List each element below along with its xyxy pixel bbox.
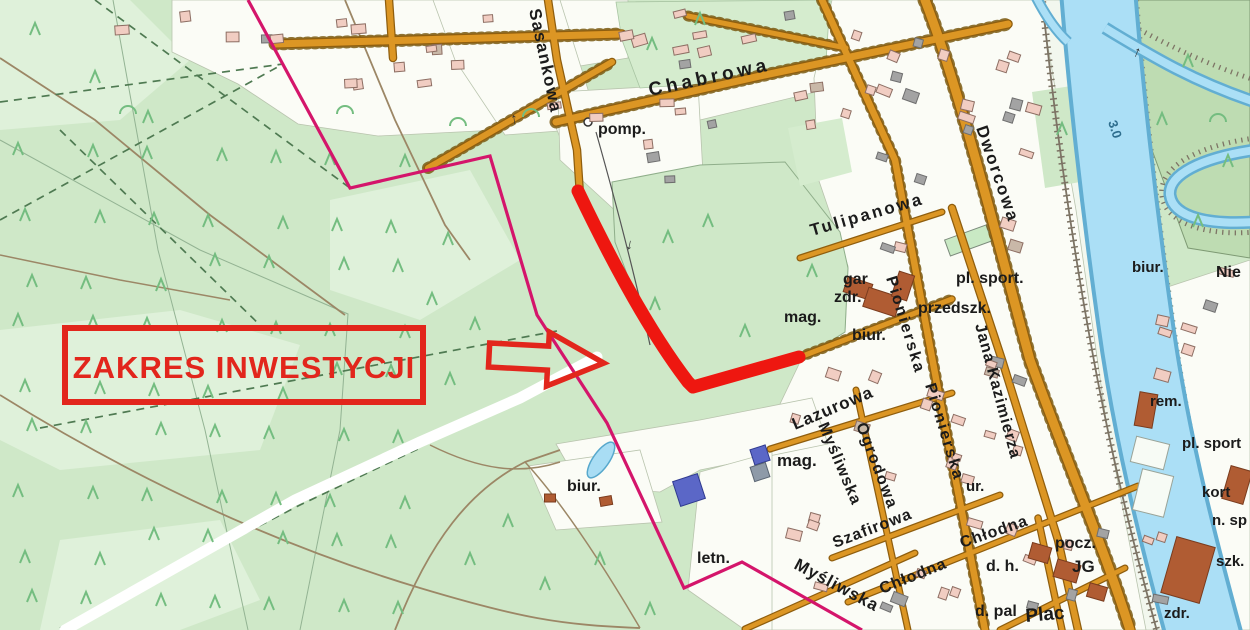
building	[841, 108, 852, 118]
building	[660, 99, 674, 107]
building	[913, 38, 923, 48]
building	[180, 11, 191, 22]
building	[707, 120, 717, 129]
poi-label-nie: Nie	[1216, 264, 1241, 281]
poi-label-ur: ur.	[966, 478, 984, 495]
building	[599, 496, 612, 507]
map-canvas: ↑ ↑ ↑ Sasankowa Chabrowa pomp. Tulipanow…	[0, 0, 1250, 630]
building	[960, 99, 974, 112]
poi-label-n-sp: n. sp	[1212, 512, 1247, 529]
annotation-label: ZAKRES INWESTYCJI	[73, 350, 416, 385]
building	[675, 108, 686, 115]
building	[344, 79, 357, 88]
building	[451, 60, 464, 69]
building	[806, 120, 816, 130]
poi-label-szk: szk.	[1216, 553, 1244, 570]
building	[665, 176, 675, 183]
poi-label-mag-2: mag.	[777, 451, 817, 470]
poi-label-jg: JG	[1072, 557, 1095, 576]
building	[226, 32, 239, 42]
poi-label-biur-2: biur.	[1132, 259, 1164, 276]
poi-label-biur-3: biur.	[567, 478, 601, 495]
building	[394, 62, 405, 72]
poi-label-pl-sport: pl. sport.	[956, 270, 1024, 287]
poi-label-d-h: d. h.	[986, 558, 1019, 575]
building	[643, 139, 653, 149]
poi-label-biur: biur.	[852, 327, 886, 344]
building	[426, 45, 437, 52]
building	[417, 79, 432, 88]
building	[891, 71, 903, 82]
poi-label-pocz: pocz.	[1055, 535, 1096, 552]
building	[810, 82, 824, 92]
poi-label-zdr-2: zdr.	[1164, 605, 1190, 622]
building	[679, 59, 691, 68]
building	[1156, 315, 1170, 327]
building	[483, 15, 493, 23]
building	[336, 19, 347, 28]
poi-label-pomp: pomp.	[598, 121, 646, 138]
poi-label-gar: gar	[843, 271, 868, 288]
poi-label-przedszk: przedszk.	[918, 300, 991, 317]
poi-label-plac: Plac	[1025, 603, 1066, 627]
map-screenshot: ↑ ↑ ↑ Sasankowa Chabrowa pomp. Tulipanow…	[0, 0, 1250, 630]
building	[619, 30, 634, 41]
poi-label-rem: rem.	[1150, 393, 1182, 410]
poi-label-letn: letn.	[697, 550, 730, 567]
poi-label-zdr: zdr.	[834, 289, 862, 306]
poi-label-kort: kort	[1202, 484, 1230, 501]
building	[115, 25, 130, 35]
poi-label-d-pal: d. pal	[975, 603, 1017, 620]
building	[545, 494, 556, 502]
building	[1010, 98, 1023, 111]
building	[784, 11, 795, 21]
poi-label-mag: mag.	[784, 309, 821, 326]
poi-label-pl-sport-2: pl. sport	[1182, 435, 1241, 452]
building	[647, 152, 660, 163]
building	[351, 24, 366, 34]
